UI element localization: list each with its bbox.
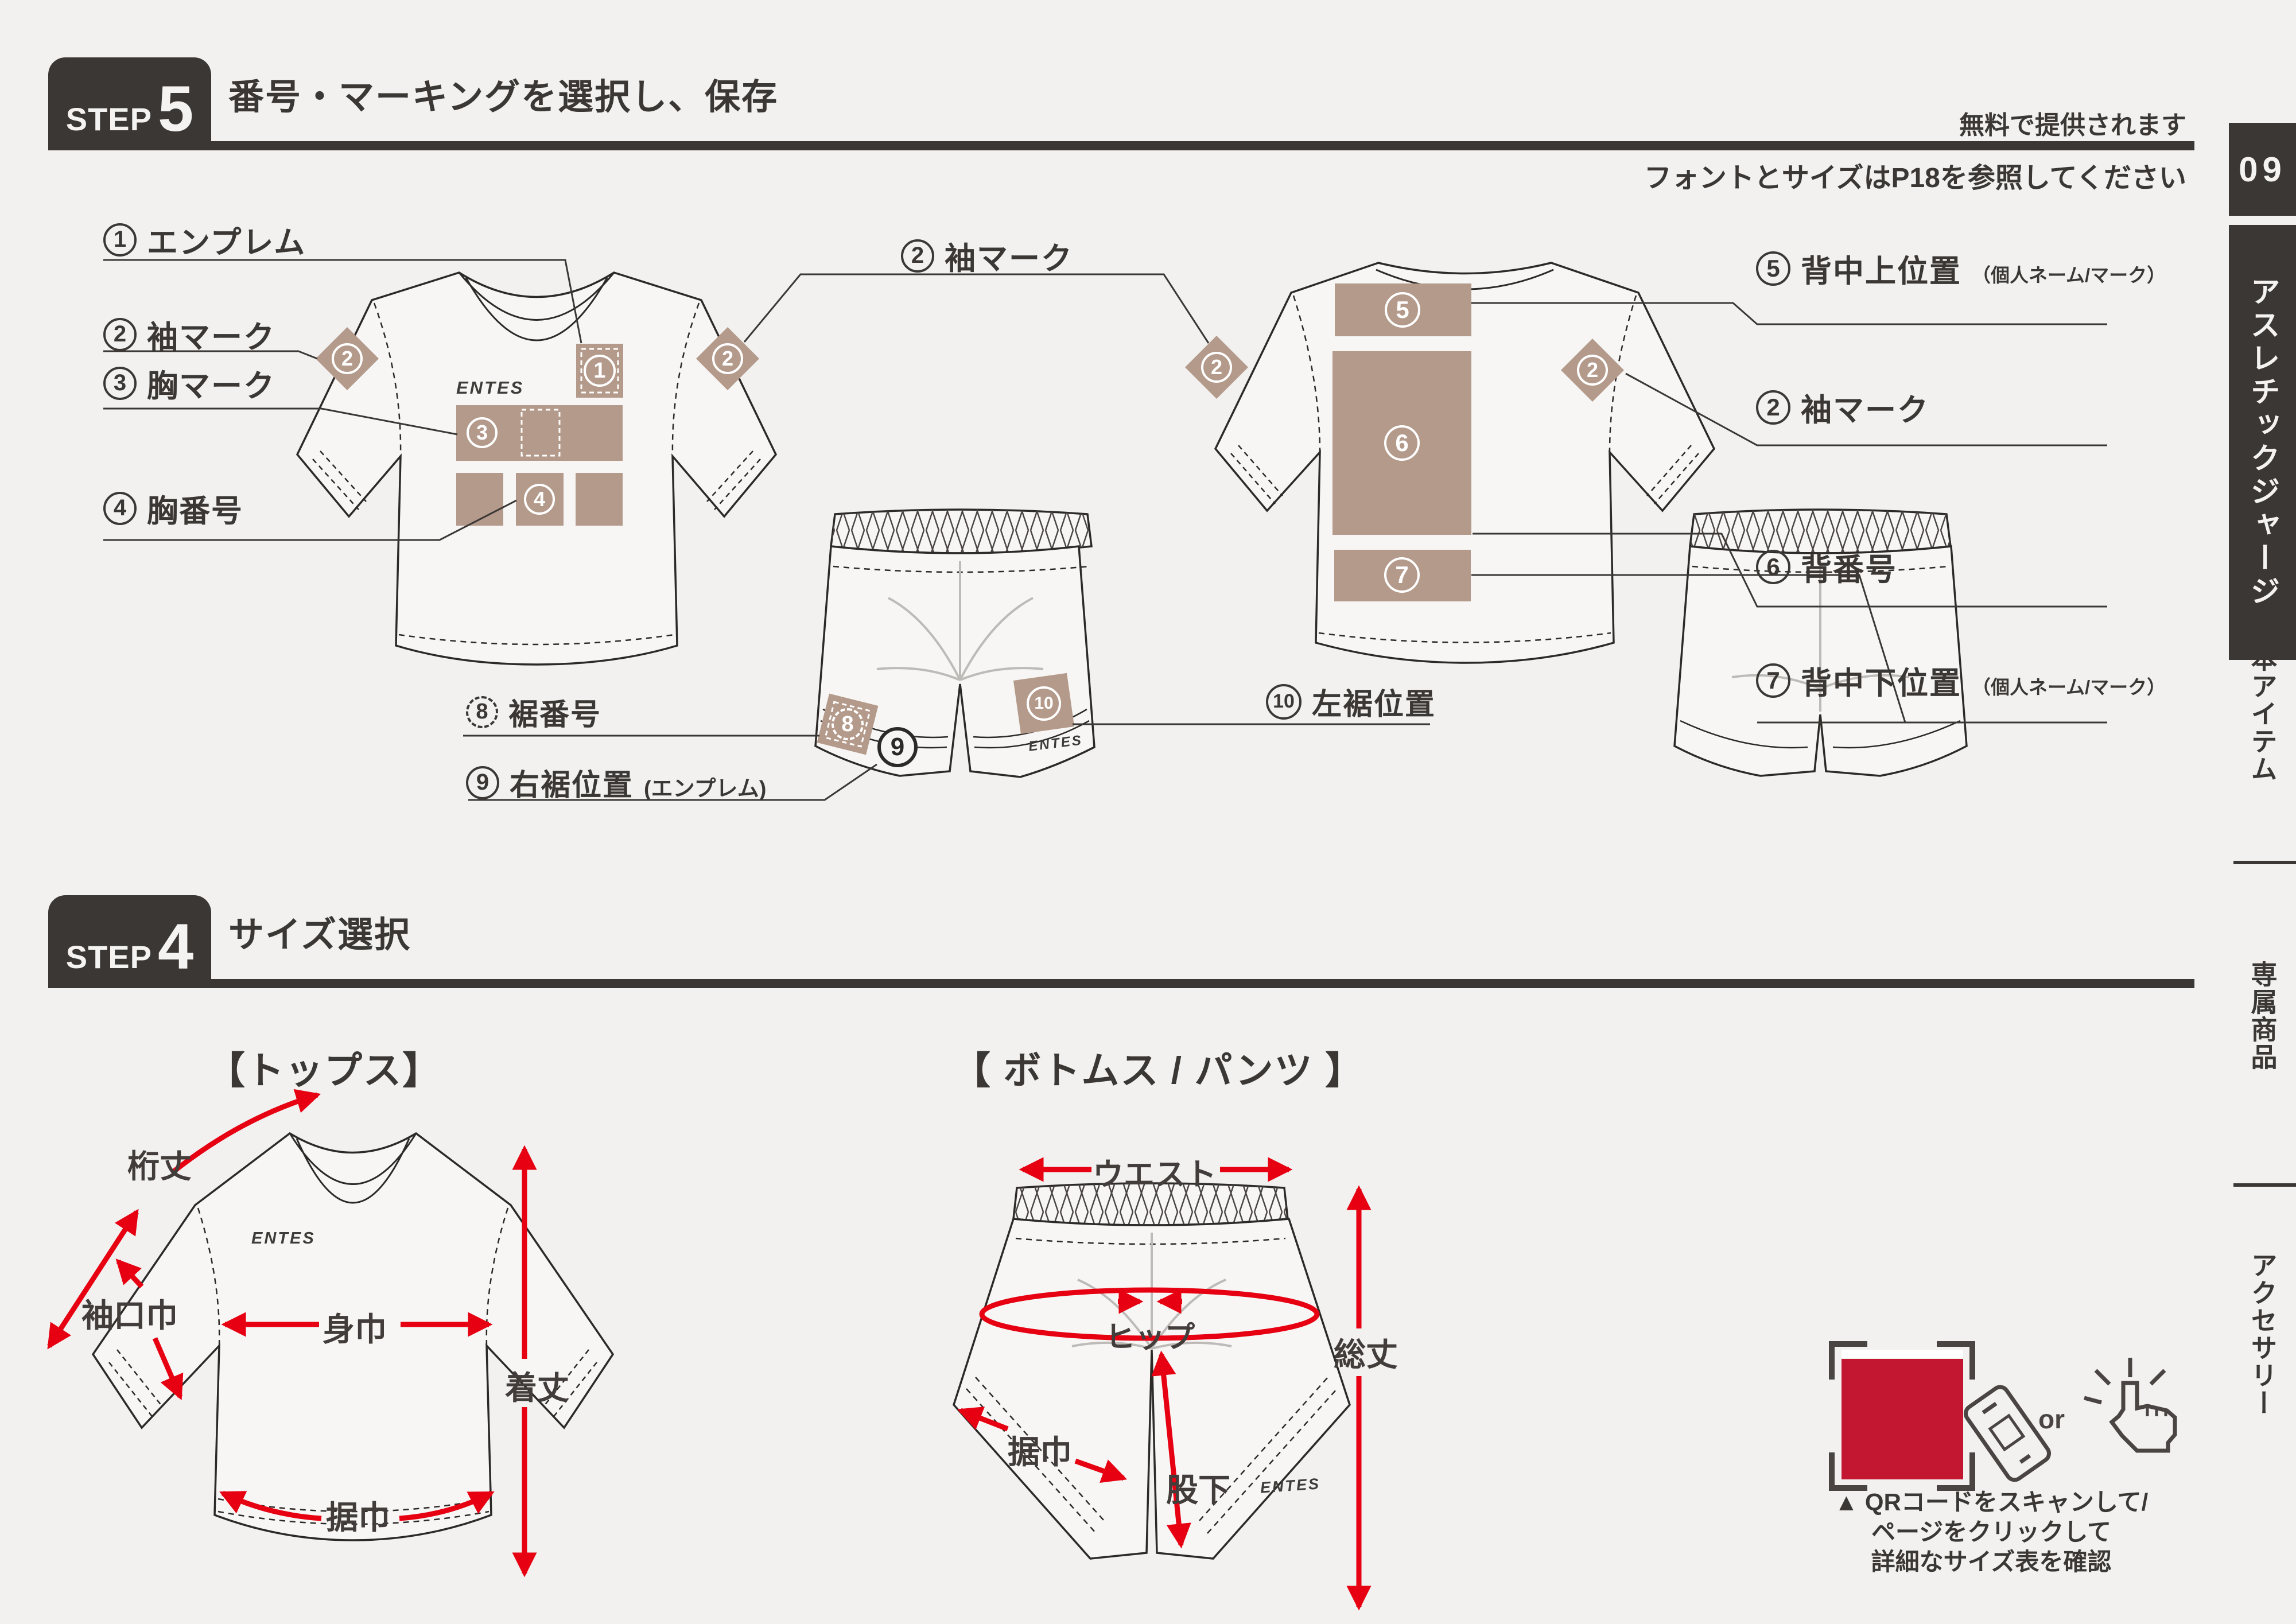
label-hem-number: 8 裾番号	[466, 690, 601, 733]
label-back-upper-suffix: （個人ネーム/マーク）	[1972, 260, 2166, 291]
diagram-canvas	[0, 0, 2296, 1624]
mark-10-left-hem: 10	[1027, 686, 1061, 721]
measure-garment-length: 着丈	[505, 1362, 569, 1409]
label-hem-number-text: 裾番号	[508, 690, 601, 733]
label-sleeve-mark-left-number: 2	[103, 318, 137, 351]
bottoms-title: 【 ボトムス / パンツ 】	[953, 1040, 1354, 1095]
brand-logo-size-top: ENTES	[251, 1229, 316, 1248]
size-note: フォントとサイズはP18を参照してください	[1435, 155, 2186, 195]
label-back-lower-text: 背中下位置	[1801, 658, 1961, 703]
size-note-post: を参照してください	[1940, 163, 2186, 193]
label-sleeve-mark-right-text: 袖マーク	[1801, 384, 1929, 430]
sidebar-item-exclusive-label: 専属商品	[2244, 961, 2282, 1071]
sidebar-tab-label: アスレチックジャージ	[2241, 276, 2284, 609]
label-emblem-text: エンプレム	[147, 217, 306, 262]
step4-title: サイズ選択	[228, 906, 411, 957]
label-chest-mark: 3 胸マーク	[103, 360, 275, 406]
mark-2-sleeve-back-right: 2	[1577, 355, 1608, 386]
sidebar-item-accessory[interactable]: アクセサリー	[2229, 1245, 2296, 1423]
step5-badge: STEP 5	[48, 57, 211, 141]
sidebar-item-accessory-label: アクセサリー	[2244, 1252, 2282, 1417]
label-right-hem-text: 右裾位置	[510, 761, 634, 804]
qr-caption-line2: ページをクリックして	[1802, 1517, 2181, 1547]
label-left-hem-text: 左裾位置	[1312, 680, 1436, 723]
step4-badge-number: 4	[158, 920, 193, 973]
label-right-hem-number: 9	[466, 766, 499, 799]
step4-rule	[48, 979, 2194, 988]
mark-2-sleeve-front-left: 2	[332, 343, 363, 374]
label-back-upper-text: 背中上位置	[1801, 246, 1961, 291]
qr-caption-line3: 詳細なサイズ表を確認	[1802, 1547, 2181, 1577]
label-sleeve-mark-center: 2 袖マーク	[901, 233, 1073, 278]
label-right-hem: 9 右裾位置 (エンプレム)	[466, 761, 766, 804]
mark-8-hem-number: 8	[832, 708, 864, 740]
label-emblem: 1 エンプレム	[103, 217, 306, 262]
label-hem-number-number: 8	[466, 696, 498, 728]
qr-white-strip	[1842, 1350, 1963, 1358]
sidebar-divider-2	[2233, 1183, 2296, 1187]
measure-inseam: 股下	[1166, 1464, 1230, 1511]
label-back-number: 6 背番号	[1756, 544, 1897, 589]
page-number: 09	[2239, 150, 2286, 189]
front-shirt	[297, 273, 776, 665]
mark-6-back-number: 6	[1384, 425, 1420, 461]
sidebar-item-exclusive[interactable]: 専属商品	[2229, 944, 2296, 1087]
label-back-number-number: 6	[1756, 550, 1790, 584]
label-right-hem-suffix: (エンプレム)	[644, 771, 766, 804]
label-back-upper: 5 背中上位置 （個人ネーム/マーク）	[1756, 246, 2166, 291]
label-sleeve-mark-center-number: 2	[901, 239, 934, 273]
label-emblem-number: 1	[103, 223, 137, 257]
label-chest-mark-number: 3	[103, 367, 137, 400]
size-bottom	[954, 1170, 1359, 1607]
qr-caption-line1: ▲ QRコードをスキャンして/	[1802, 1487, 2181, 1517]
measure-total-length: 総丈	[1334, 1329, 1398, 1376]
label-left-hem-number: 10	[1266, 684, 1302, 720]
size-note-page-ref: P18	[1891, 163, 1940, 193]
measure-chest-width: 身巾	[323, 1304, 387, 1350]
label-sleeve-mark-left: 2 袖マーク	[103, 312, 275, 357]
back-shirt	[1185, 263, 1714, 663]
measure-hem-width-bottom: 据巾	[1008, 1427, 1072, 1473]
size-note-pre: フォントとサイズは	[1644, 163, 1891, 193]
measure-hem-width-top: 据巾	[326, 1492, 390, 1538]
measure-sleeve-length: 桁丈	[127, 1141, 192, 1187]
measure-hip: ヒップ	[1105, 1313, 1195, 1356]
label-sleeve-mark-center-text: 袖マーク	[945, 233, 1073, 278]
label-back-lower: 7 背中下位置 （個人ネーム/マーク）	[1756, 658, 2166, 703]
label-back-lower-suffix: （個人ネーム/マーク）	[1972, 672, 2166, 703]
step4-badge-word: STEP	[66, 941, 152, 973]
mark-5-back-upper: 5	[1385, 292, 1420, 328]
measure-cuff-width: 袖口巾	[81, 1290, 178, 1337]
sidebar-tab-athletic-jersey[interactable]: アスレチックジャージ	[2229, 225, 2296, 660]
label-sleeve-mark-right-number: 2	[1756, 390, 1790, 425]
label-chest-mark-text: 胸マーク	[147, 360, 275, 406]
step5-title: 番号・マーキングを選択し、保存	[228, 68, 778, 119]
mark-1-emblem: 1	[584, 355, 616, 387]
tops-title: 【トップス】	[181, 1040, 468, 1095]
sidebar-item-basic-label: 基本アイテム	[2244, 617, 2282, 783]
mark-2-sleeve-back-left: 2	[1201, 352, 1232, 383]
free-note: 無料で提供されます	[1664, 104, 2186, 141]
or-text: or	[2038, 1404, 2065, 1435]
label-back-upper-number: 5	[1756, 251, 1790, 286]
mark-2-sleeve-front-right: 2	[712, 343, 743, 374]
qr-caption: ▲ QRコードをスキャンして/ ページをクリックして 詳細なサイズ表を確認	[1802, 1487, 2181, 1577]
label-chest-number: 4 胸番号	[103, 485, 243, 531]
step5-rule	[48, 141, 2194, 150]
sidebar-item-basic[interactable]: 基本アイテム	[2229, 614, 2296, 786]
label-back-number-text: 背番号	[1801, 544, 1897, 589]
sidebar-divider-1	[2233, 861, 2296, 864]
qr-code-placeholder[interactable]	[1842, 1359, 1963, 1479]
catalog-page: STEP 5 番号・マーキングを選択し、保存 無料で提供されます フォントとサイ…	[0, 0, 2296, 1624]
label-sleeve-mark-right: 2 袖マーク	[1756, 384, 1929, 430]
brand-logo-front-shirt: ENTES	[456, 378, 524, 398]
step4-badge: STEP 4	[48, 895, 211, 979]
label-chest-number-text: 胸番号	[147, 485, 243, 531]
mark-4-chest-number: 4	[524, 484, 555, 515]
mark-7-back-lower: 7	[1384, 557, 1420, 593]
label-back-lower-number: 7	[1756, 663, 1790, 698]
measure-waist: ウエスト	[1093, 1149, 1217, 1194]
step5-badge-number: 5	[158, 83, 193, 135]
label-chest-number-number: 4	[103, 492, 137, 525]
page-number-badge: 09	[2229, 123, 2296, 216]
click-hand-icon	[2084, 1358, 2175, 1451]
mark-3-chest-mark: 3	[467, 417, 498, 448]
step5-badge-word: STEP	[66, 103, 152, 135]
mark-9-right-hem: 9	[877, 727, 918, 767]
label-sleeve-mark-left-text: 袖マーク	[147, 312, 275, 357]
label-left-hem: 10 左裾位置	[1266, 680, 1436, 723]
